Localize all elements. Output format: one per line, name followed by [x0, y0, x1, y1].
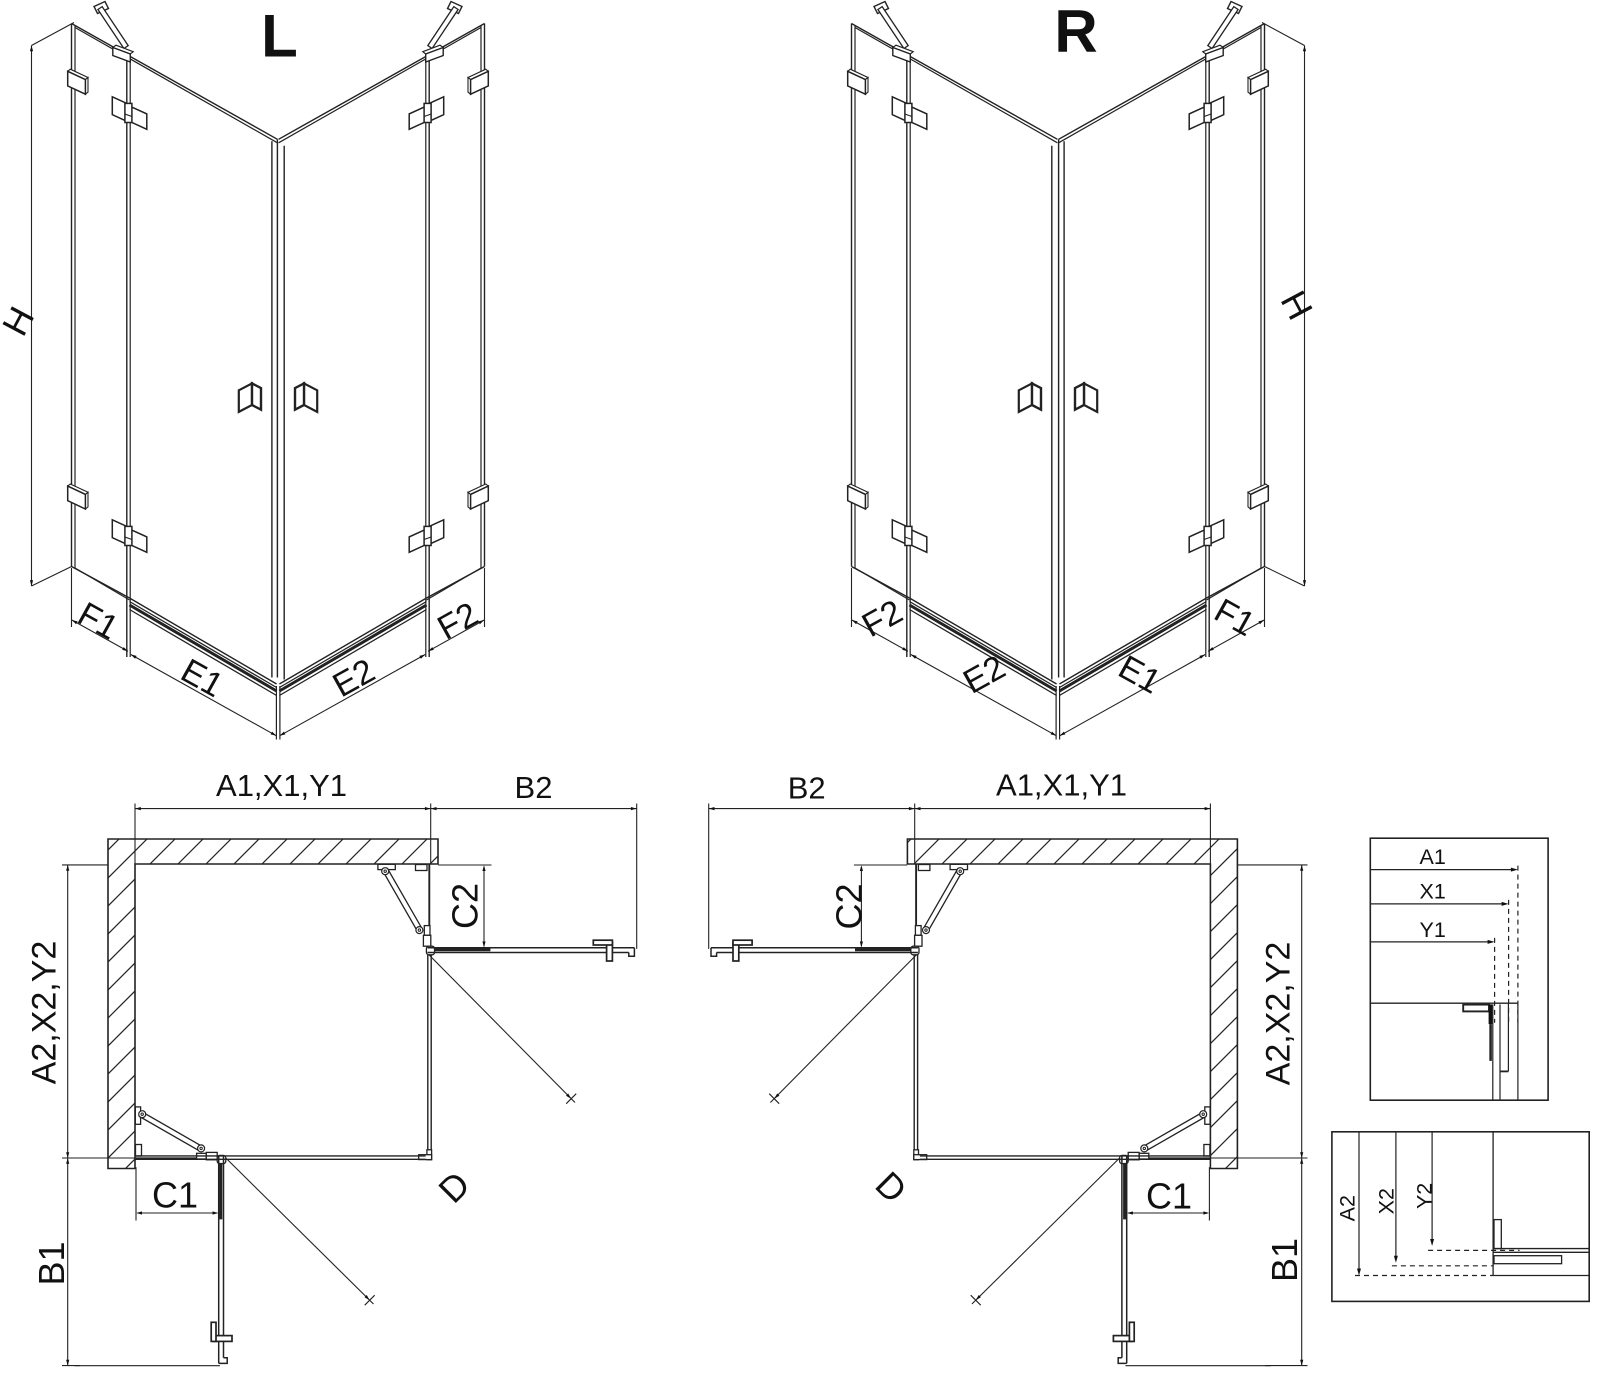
svg-text:L: L [261, 3, 298, 70]
svg-text:C1: C1 [1146, 1175, 1192, 1216]
svg-text:C1: C1 [152, 1175, 198, 1216]
svg-text:B1: B1 [1264, 1238, 1305, 1282]
svg-text:X1: X1 [1420, 880, 1446, 904]
svg-text:B2: B2 [788, 770, 826, 805]
svg-text:A2,X2,Y2: A2,X2,Y2 [26, 941, 64, 1085]
svg-text:Y2: Y2 [1413, 1183, 1437, 1209]
svg-text:A1,X1,Y1: A1,X1,Y1 [216, 768, 347, 803]
svg-text:A2,X2,Y2: A2,X2,Y2 [1259, 942, 1297, 1086]
svg-text:A1,X1,Y1: A1,X1,Y1 [996, 767, 1127, 802]
svg-text:B2: B2 [515, 770, 553, 805]
svg-text:R: R [1054, 0, 1097, 65]
svg-text:B1: B1 [31, 1241, 72, 1285]
svg-text:A2: A2 [1335, 1195, 1359, 1221]
svg-text:Y1: Y1 [1420, 918, 1446, 942]
svg-text:X2: X2 [1374, 1188, 1398, 1214]
svg-text:A1: A1 [1420, 845, 1446, 869]
svg-text:C2: C2 [445, 883, 486, 929]
svg-text:C2: C2 [829, 883, 870, 929]
